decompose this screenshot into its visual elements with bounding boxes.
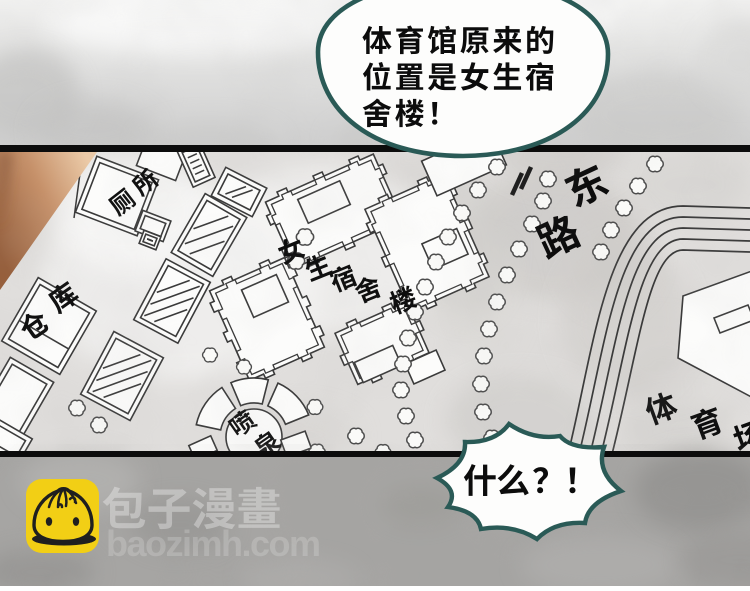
svg-text:baozimh.com: baozimh.com [106, 523, 320, 564]
